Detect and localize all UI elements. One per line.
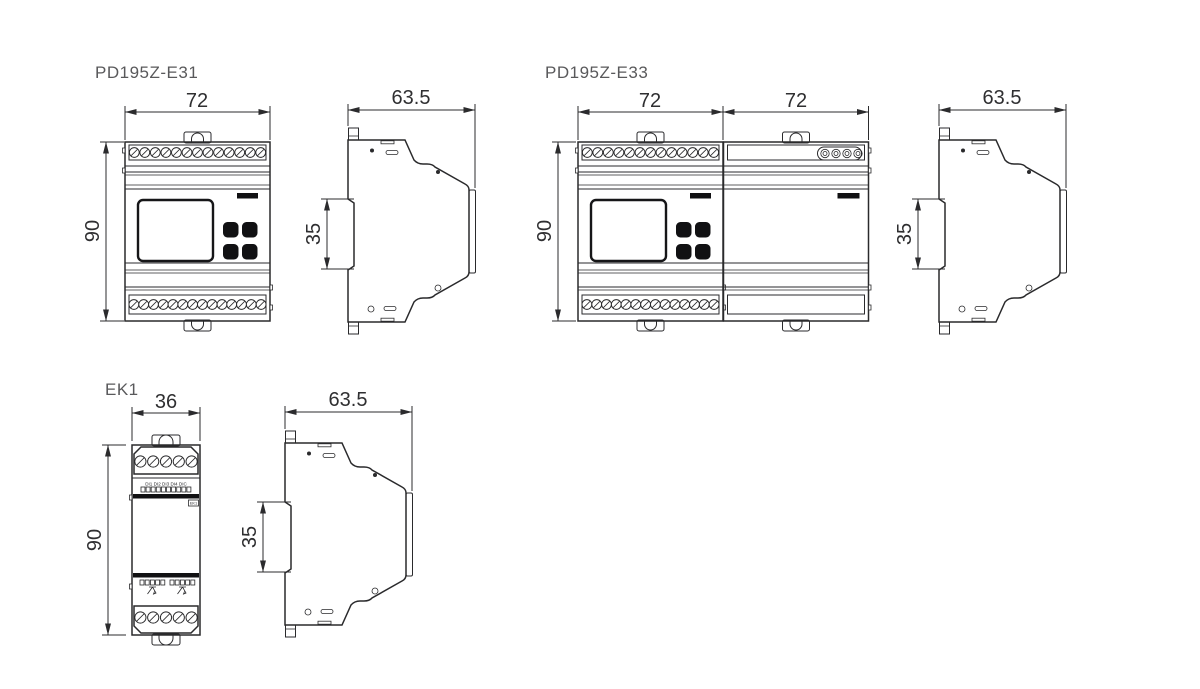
dimension-drawing: DI1 DI2 DI3 DI4 DIC EK1: [0, 0, 1200, 689]
e31-drawing-group: PD195Z-E31 72 90 63.5 35: [82, 63, 476, 334]
ek1-din-dimension: 35: [239, 502, 291, 572]
svg-text:72: 72: [639, 90, 661, 112]
svg-text:35: 35: [239, 526, 261, 548]
ek1-drawing-group: EK1 36 90 63.5 35: [84, 380, 413, 645]
ek1-side-view: [285, 431, 413, 637]
ek1-front-view: [130, 435, 201, 645]
e33-front-view-right-module: [724, 132, 872, 331]
svg-text:36: 36: [155, 391, 177, 413]
svg-text:90: 90: [84, 529, 106, 551]
svg-text:63.5: 63.5: [983, 87, 1022, 109]
technical-drawing-page: DI1 DI2 DI3 DI4 DIC EK1: [0, 0, 1200, 689]
svg-text:63.5: 63.5: [329, 389, 368, 411]
e33-drawing-group: PD195Z-E33 72 72 90 63.5: [534, 63, 1067, 334]
ek1-depth-dimension: 63.5: [285, 389, 412, 491]
e31-height-dimension: 90: [82, 142, 124, 321]
svg-text:63.5: 63.5: [392, 87, 431, 109]
svg-text:72: 72: [186, 90, 208, 112]
e33-front-view-left-module: [576, 132, 726, 331]
e33-depth-dimension: 63.5: [939, 87, 1066, 188]
e31-title: PD195Z-E31: [95, 63, 198, 82]
e33-height-dimension: 90: [534, 142, 576, 321]
e31-depth-dimension: 63.5: [348, 87, 475, 188]
svg-text:72: 72: [785, 90, 807, 112]
e33-side-view: [939, 128, 1067, 334]
e33-din-dimension: 35: [894, 199, 945, 269]
svg-text:90: 90: [534, 220, 556, 242]
e31-side-view: [348, 128, 476, 334]
ek1-title: EK1: [105, 380, 139, 399]
svg-text:35: 35: [894, 223, 916, 245]
svg-text:90: 90: [82, 220, 104, 242]
e31-front-view: [123, 132, 273, 331]
e31-din-dimension: 35: [303, 199, 354, 269]
e33-title: PD195Z-E33: [545, 63, 648, 82]
ek1-height-dimension: 90: [84, 445, 126, 635]
svg-text:35: 35: [303, 223, 325, 245]
ek1-width-dimension: 36: [132, 391, 200, 441]
